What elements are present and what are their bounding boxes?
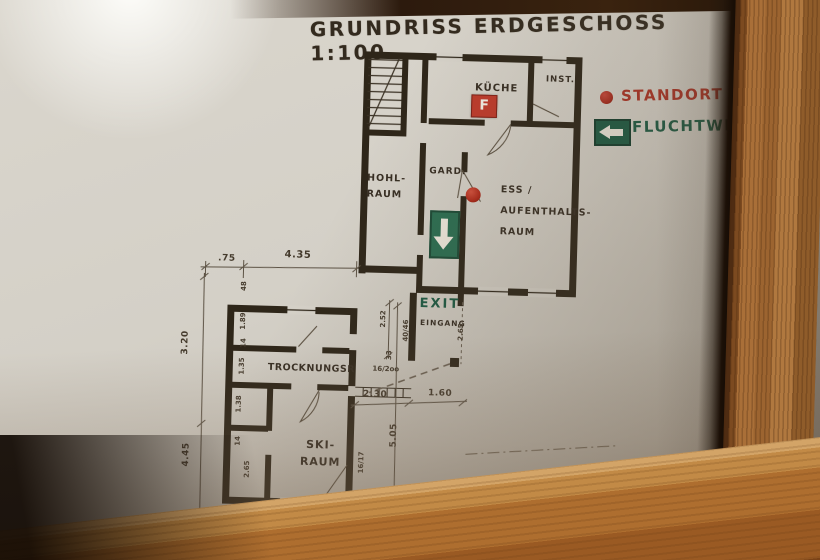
dim-width-435: 4.35 (278, 249, 318, 261)
dim-w138: 1.38 (234, 387, 247, 421)
room-label-garderobe: GARD. (429, 165, 467, 178)
dim-entry-230: 2.30 (360, 389, 390, 400)
dim-exit-265: 2.65 (456, 315, 469, 349)
dim-w48: 48 (240, 269, 253, 303)
escape-route-down-arrow-icon (429, 210, 460, 259)
exit-sign: EXIT (419, 295, 469, 314)
dim-entry-160: 1.60 (425, 388, 455, 399)
dim-wall-4046: 40/46 (401, 313, 414, 347)
dim-height-320: 3.20 (180, 325, 193, 359)
down-arrow-head (433, 236, 453, 250)
dim-height-505: 5.05 (388, 418, 401, 452)
room-label-essraum: ESS / AUFENTHALTS- RAUM (499, 179, 593, 245)
room-label-hohlraum: HOHL- RAUM (366, 170, 415, 203)
room-label-inst: INST. (546, 74, 584, 87)
bottom-left-shadow (0, 435, 380, 560)
dim-offset-75: .75 (214, 253, 240, 264)
staircase (367, 57, 403, 128)
fire-extinguisher-icon: F (471, 94, 498, 118)
dim-wall-33: 33 (385, 338, 398, 372)
room-label-trocknungsraum: TROCKNUNGSR (268, 362, 360, 377)
down-arrow-shaft (440, 219, 448, 238)
dim-exit-252: 2.52 (379, 302, 392, 336)
framed-floor-plan-photo: GRUNDRISS ERDGESCHOSS 1:100 STANDORT FLU… (0, 0, 820, 560)
dim-w135: 1.35 (237, 349, 250, 383)
